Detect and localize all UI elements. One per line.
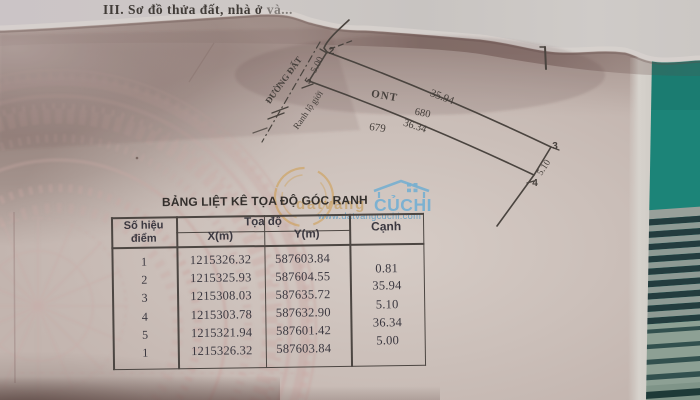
svg-text:680: 680: [414, 107, 432, 121]
svg-text:36.34: 36.34: [402, 118, 429, 136]
svg-text:4: 4: [532, 178, 538, 189]
svg-text:III. Sơ đồ thửa đất, nhà ở và.: III. Sơ đồ thửa đất, nhà ở và...: [103, 2, 293, 17]
svg-text:679: 679: [368, 121, 387, 135]
svg-text:2: 2: [329, 46, 335, 57]
svg-text:5.10: 5.10: [536, 158, 554, 178]
svg-text:3: 3: [552, 141, 558, 152]
